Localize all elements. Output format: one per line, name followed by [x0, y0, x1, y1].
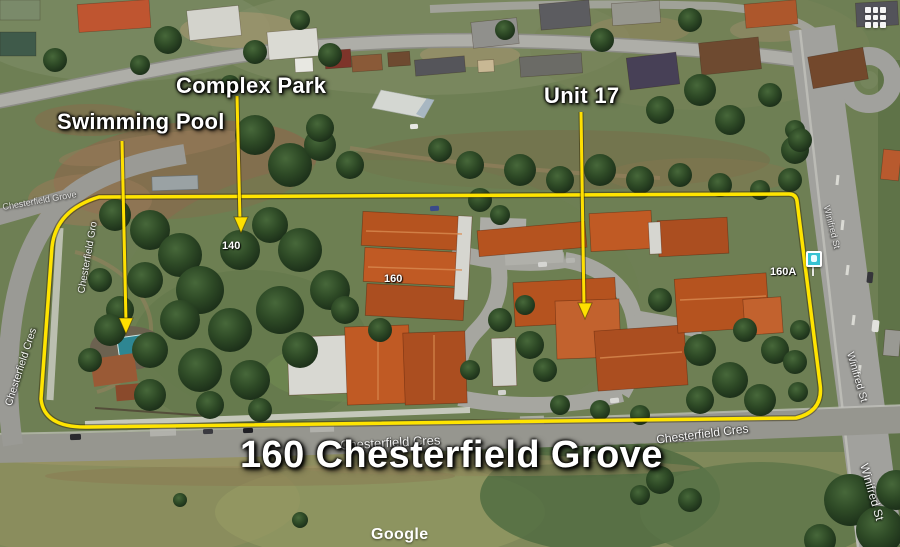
google-watermark[interactable]: Google	[371, 526, 429, 544]
house-number-140: 140	[222, 240, 240, 252]
house-number-160a: 160A	[770, 266, 796, 278]
aerial-map-view[interactable]: Chesterfield Grove Chesterfield Gro Ches…	[0, 0, 900, 547]
gray-shed	[152, 175, 198, 191]
callout-swimming-pool: Swimming Pool	[57, 109, 225, 135]
bus-stop-pole	[812, 267, 814, 276]
callout-unit-17: Unit 17	[544, 83, 619, 109]
property-title: 160 Chesterfield Grove	[240, 434, 663, 477]
house-number-160: 160	[384, 273, 402, 285]
apps-grid-icon[interactable]	[865, 7, 886, 28]
bus-stop-icon[interactable]	[806, 251, 822, 267]
callout-complex-park: Complex Park	[176, 73, 326, 99]
